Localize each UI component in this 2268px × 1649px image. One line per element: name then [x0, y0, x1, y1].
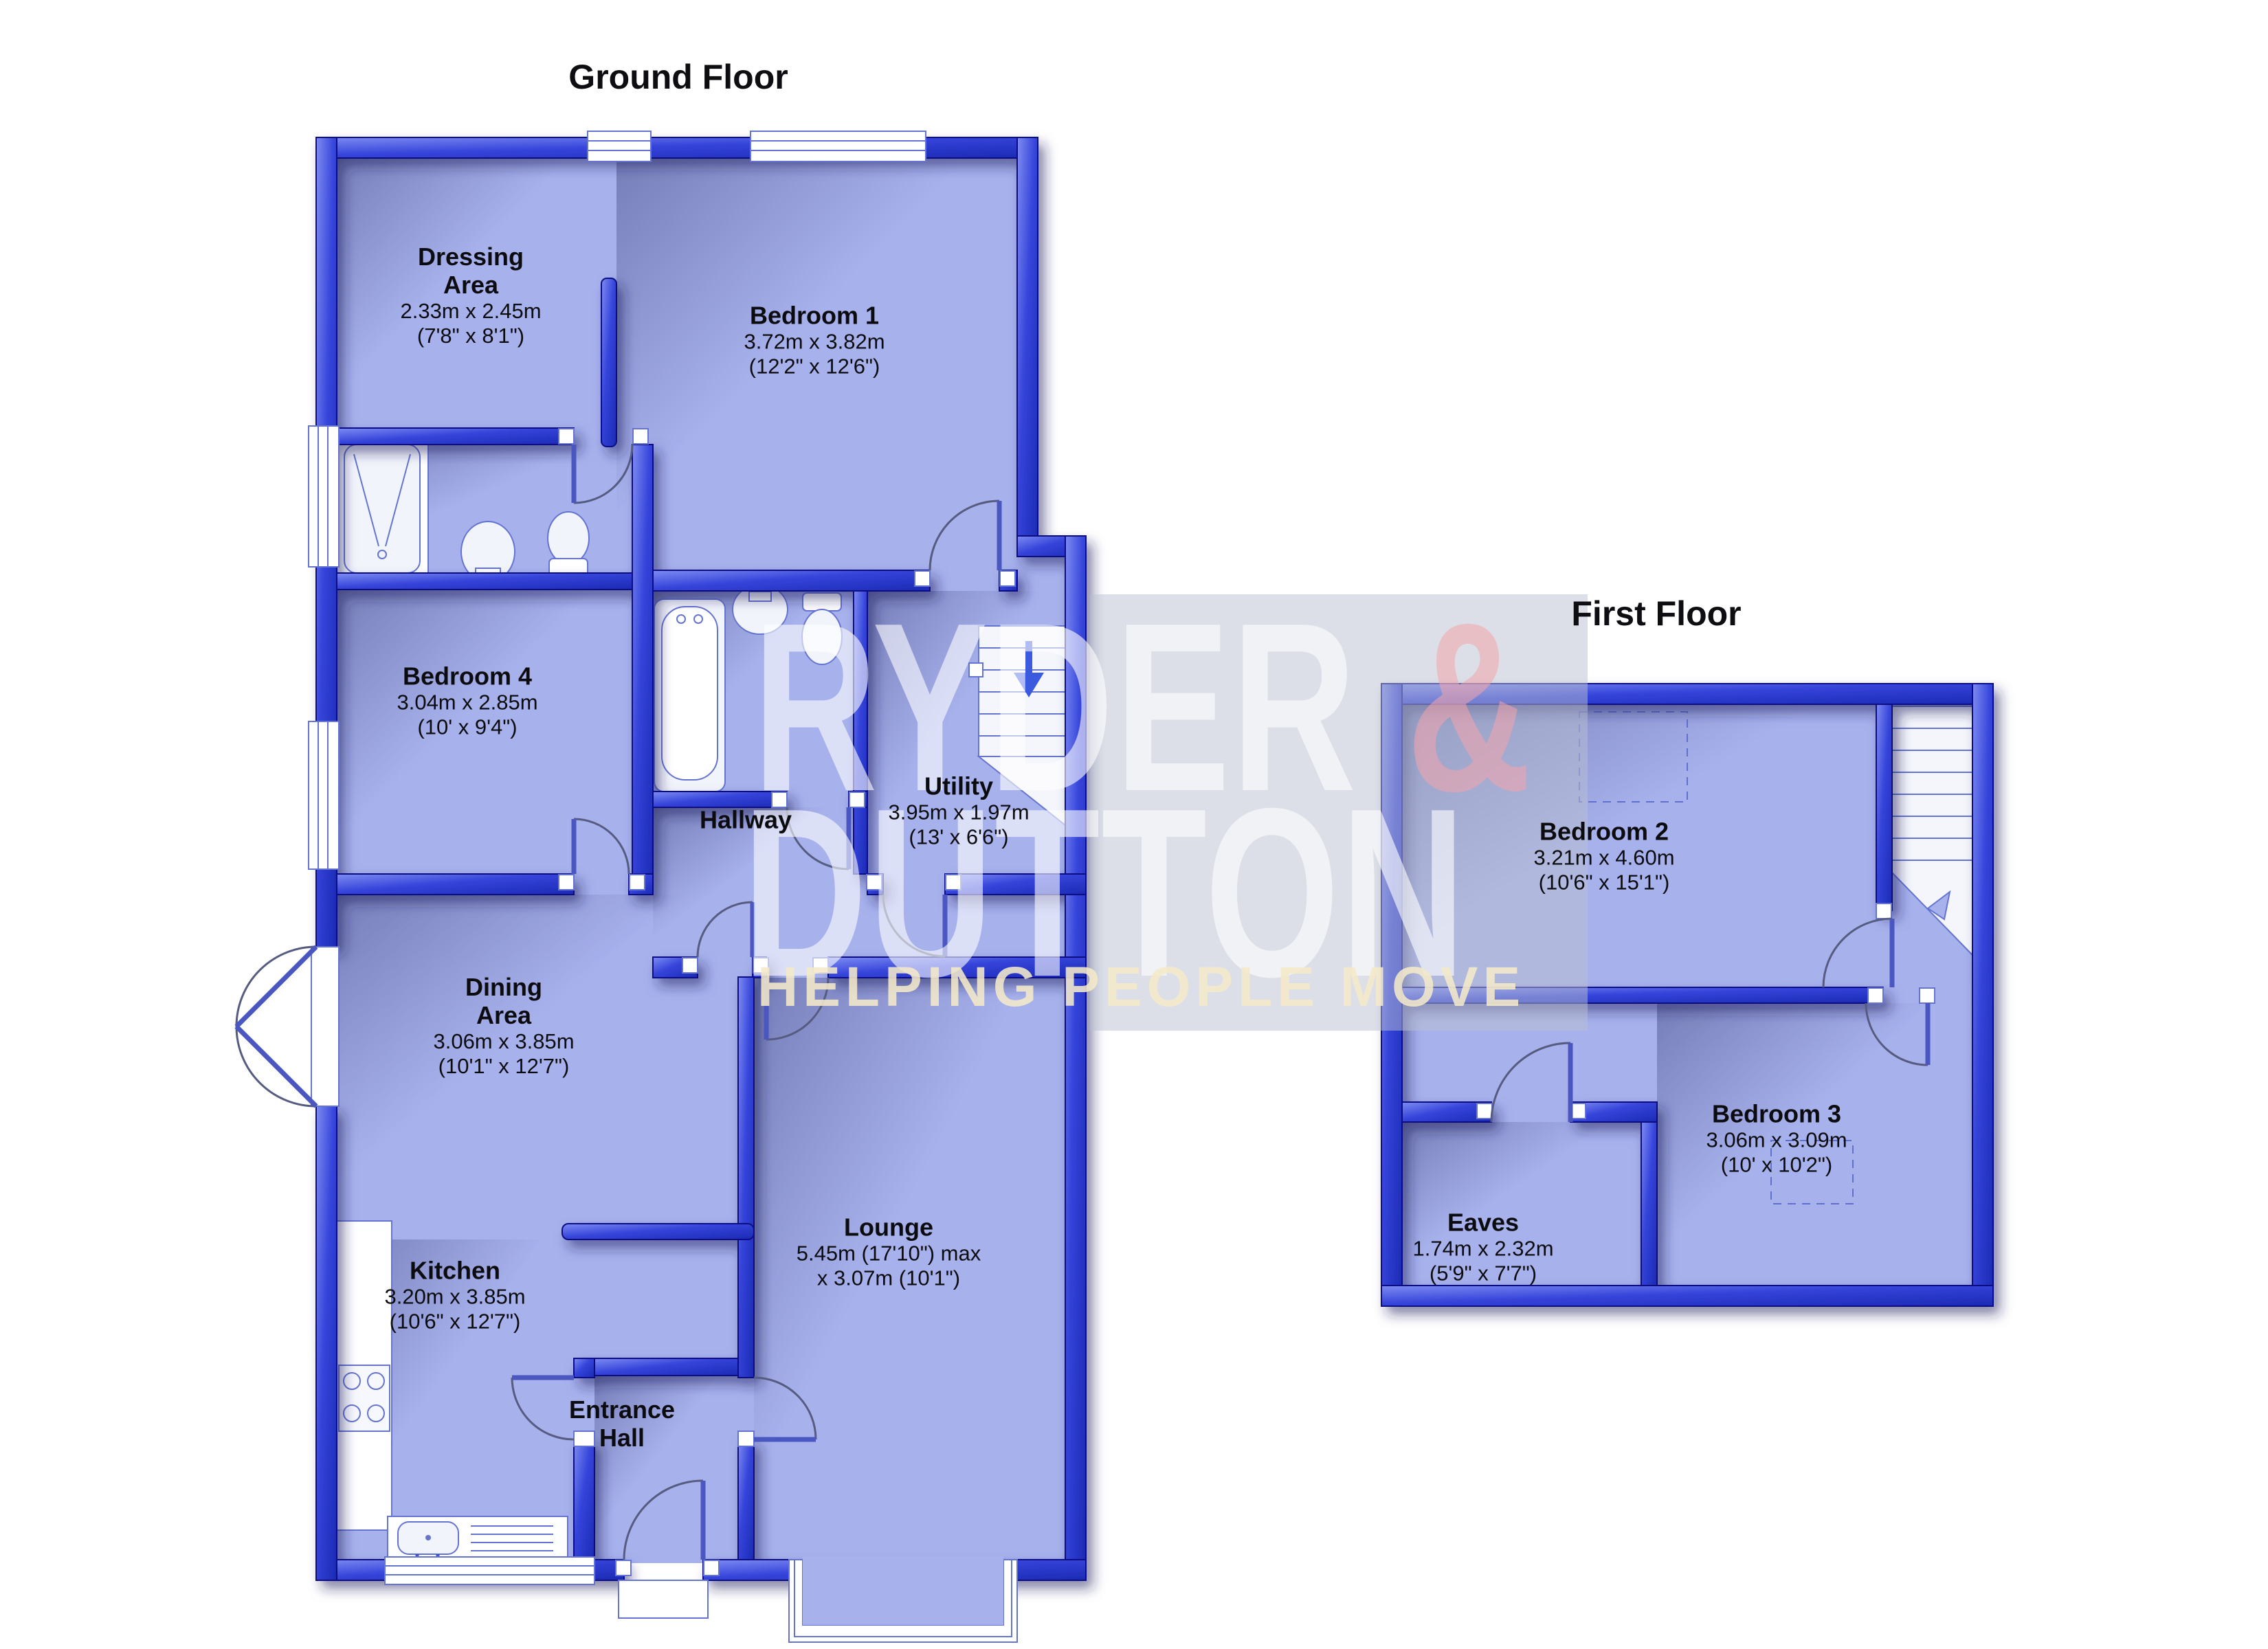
window: [385, 1557, 594, 1584]
bathtub: [654, 599, 725, 792]
room-label-kitchen: Kitchen 3.20m x 3.85m (10'6" x 12'7"): [384, 1257, 525, 1334]
first-floor-title: First Floor: [1571, 594, 1741, 633]
ground-floor-title: Ground Floor: [568, 57, 788, 97]
hob: [339, 1365, 390, 1431]
room-label-hallway: Hallway: [700, 806, 792, 834]
window: [751, 131, 926, 161]
window: [309, 721, 339, 869]
room-label-dressing-area: Dressing Area 2.33m x 2.45m (7'8" x 8'1"…: [400, 243, 541, 348]
room-label-bedroom-3: Bedroom 3 3.06m x 3.09m (10' x 10'2"): [1706, 1100, 1847, 1178]
kitchen-sink: [388, 1516, 568, 1562]
french-door-sill: [311, 947, 339, 1106]
window: [588, 131, 651, 161]
watermark-tagline: HELPING PEOPLE MOVE: [757, 959, 1525, 1016]
shower-cubicle: [336, 436, 428, 581]
room-label-utility: Utility 3.95m x 1.97m (13' x 6'6"): [888, 772, 1029, 850]
room-label-entrance-hall: Entrance Hall: [569, 1395, 675, 1452]
room-label-bedroom-1: Bedroom 1 3.72m x 3.82m (12'2" x 12'6"): [744, 302, 885, 379]
window: [309, 426, 339, 567]
floorplan-page: RYDER & DUTTON HELPING PEOPLE MOVE Groun…: [0, 0, 2268, 1649]
room-label-dining-area: Dining Area 3.06m x 3.85m (10'1" x 12'7"…: [433, 973, 574, 1079]
ensuite-toilet: [548, 512, 589, 576]
bay-window: [789, 1556, 1017, 1642]
room-label-eaves: Eaves 1.74m x 2.32m (5'9" x 7'7"): [1412, 1209, 1553, 1286]
room-label-bedroom-2: Bedroom 2 3.21m x 4.60m (10'6" x 15'1"): [1533, 818, 1674, 895]
room-label-lounge: Lounge 5.45m (17'10") max x 3.07m (10'1"…: [797, 1213, 981, 1291]
front-porch-step: [619, 1580, 708, 1618]
room-label-bedroom-4: Bedroom 4 3.04m x 2.85m (10' x 9'4"): [397, 662, 537, 740]
french-doors: [236, 947, 316, 1106]
